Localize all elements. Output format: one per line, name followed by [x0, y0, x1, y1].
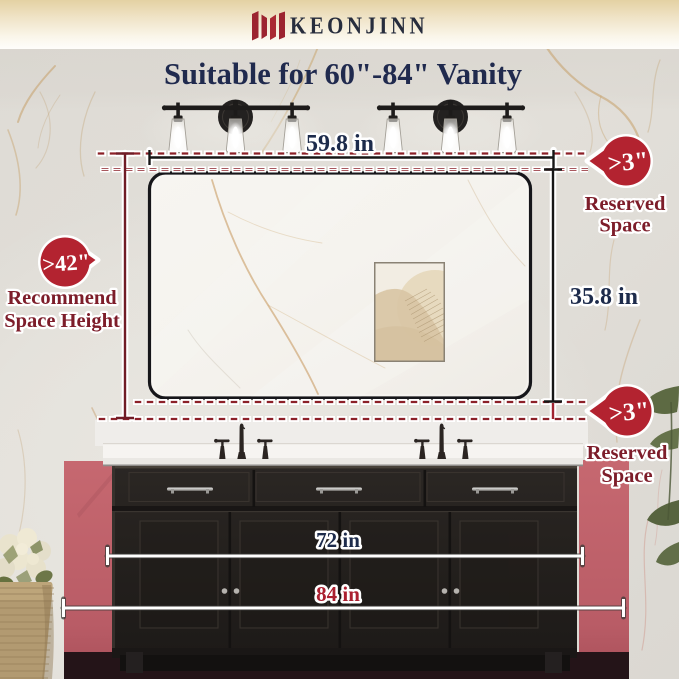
svg-text:Recommend: Recommend	[7, 287, 117, 309]
svg-text:Reserved: Reserved	[585, 193, 666, 215]
svg-text:Space: Space	[599, 215, 650, 237]
svg-text:Suitable for 60"-84" Vanity: Suitable for 60"-84" Vanity	[164, 56, 522, 91]
svg-text:Space Height: Space Height	[4, 310, 120, 332]
svg-text:35.8 in: 35.8 in	[570, 284, 638, 310]
svg-text:>42": >42"	[41, 249, 90, 277]
svg-text:>3": >3"	[608, 397, 651, 427]
svg-text:72 in: 72 in	[316, 528, 360, 552]
svg-text:>3": >3"	[607, 147, 650, 177]
svg-text:Space: Space	[601, 465, 652, 487]
svg-text:KEONJINN: KEONJINN	[290, 14, 428, 40]
svg-text:84 in: 84 in	[316, 582, 360, 606]
svg-text:Reserved: Reserved	[587, 442, 668, 464]
svg-text:59.8 in: 59.8 in	[306, 131, 374, 157]
